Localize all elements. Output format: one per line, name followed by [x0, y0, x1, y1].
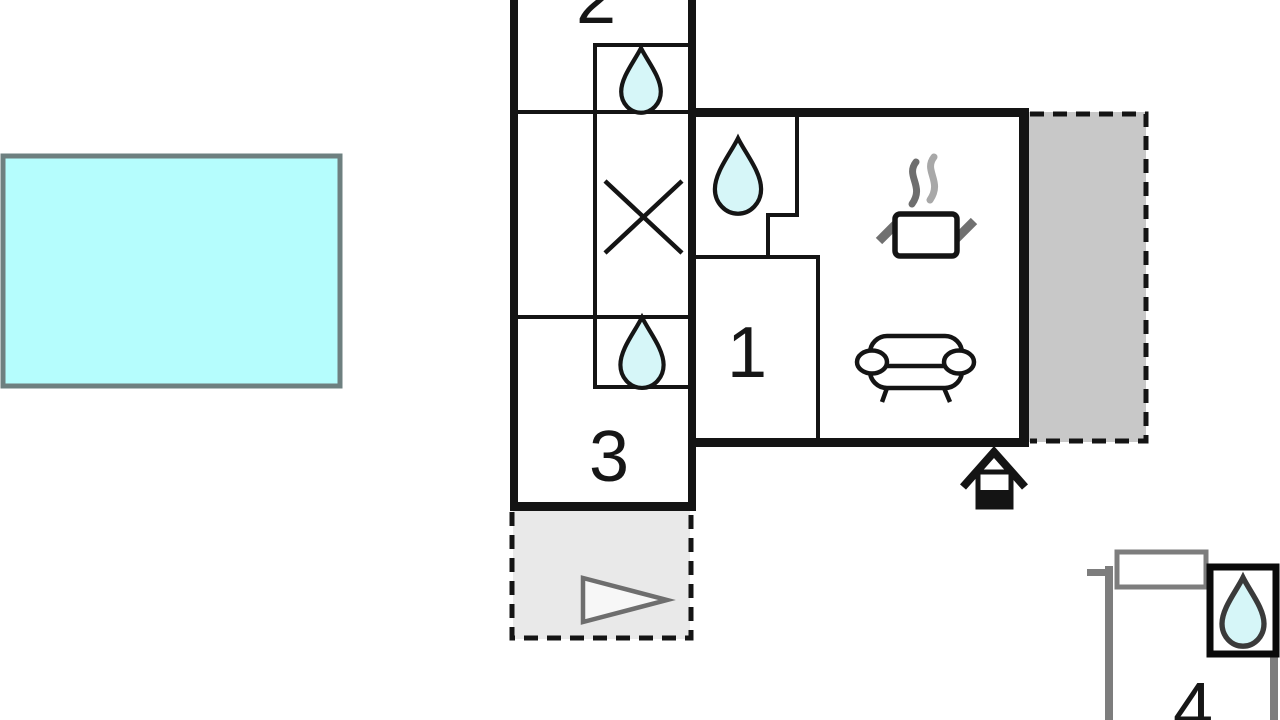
terrace-right-fill	[1028, 112, 1146, 442]
wall-left-column-bottom	[510, 502, 696, 511]
room2-label: 2	[576, 0, 616, 39]
room4-window	[1117, 552, 1206, 587]
room1-label: 1	[727, 313, 767, 393]
terrace-right	[1028, 112, 1146, 442]
wall-right-section-right	[1019, 108, 1029, 447]
wall-room1-right	[816, 255, 820, 442]
water-drop-icon	[621, 48, 661, 113]
floor-plan-canvas: 2 1 3 4	[0, 0, 1280, 720]
wall-right-section-bottom	[692, 438, 1029, 447]
entrance-square-fill	[978, 490, 1011, 507]
sofa-icon	[857, 336, 974, 402]
sofa-armrest-left	[857, 351, 887, 374]
water-drop-icon	[715, 138, 761, 213]
wall-corridor-vertical	[593, 43, 597, 389]
water-drop-icon	[620, 317, 663, 388]
wall-room3-top	[514, 315, 692, 319]
pool	[3, 156, 340, 386]
entrance-house-icon	[963, 452, 1025, 507]
x-cross-icon	[605, 181, 682, 253]
wall-room1-top	[692, 255, 820, 259]
terrace-front	[512, 511, 691, 639]
wall-bathroom-notch	[766, 213, 770, 259]
sofa-armrest-right	[944, 351, 974, 374]
terrace-front-fill	[513, 511, 690, 639]
wall-right-section-top	[692, 108, 1029, 117]
steam-line-light	[930, 157, 935, 200]
floor-plan-page: 2 1 3 4	[0, 0, 1280, 720]
room4-label: 4	[1173, 669, 1213, 720]
wall-left-column-left	[510, 0, 518, 511]
pot-body	[895, 214, 957, 256]
room4-wall-right	[1270, 648, 1278, 720]
wall-bathroom-jog	[767, 213, 799, 217]
interior-walls	[514, 43, 820, 442]
room4-wall-left	[1105, 566, 1113, 720]
steam-line-dark	[912, 162, 917, 204]
wall-bathroom-right	[795, 112, 799, 217]
cooking-pot-steam-icon	[879, 157, 974, 256]
wall-room2-bottom	[514, 110, 692, 114]
room3-label: 3	[589, 417, 629, 497]
